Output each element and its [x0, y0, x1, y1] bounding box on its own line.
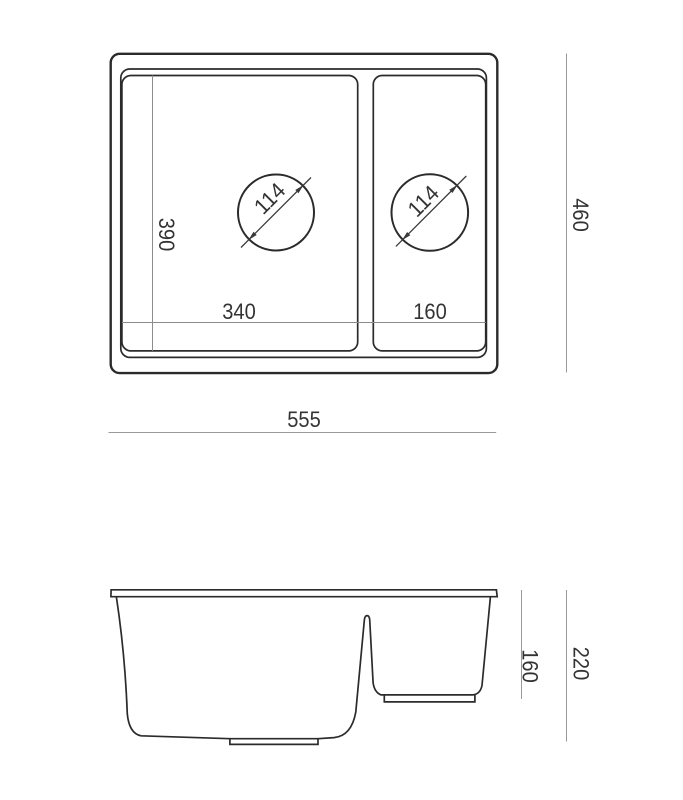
svg-text:555: 555 — [287, 407, 321, 432]
svg-text:460: 460 — [568, 198, 593, 232]
svg-text:340: 340 — [222, 299, 256, 324]
svg-text:220: 220 — [569, 647, 594, 681]
svg-text:160: 160 — [413, 299, 447, 324]
svg-text:390: 390 — [154, 218, 179, 252]
svg-text:160: 160 — [518, 649, 543, 683]
